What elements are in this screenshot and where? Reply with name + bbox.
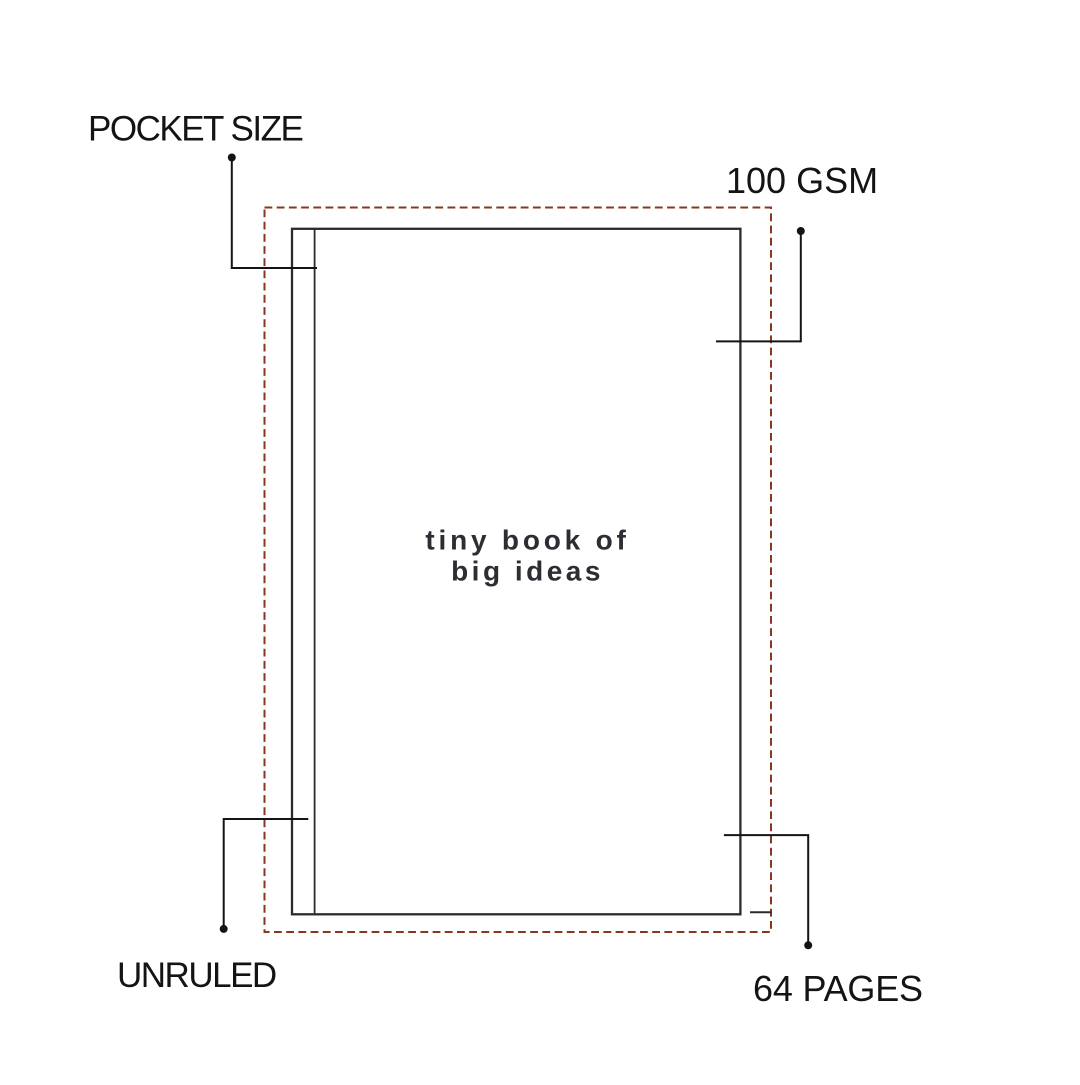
svg-text:POCKET SIZE: POCKET SIZE xyxy=(88,109,302,148)
svg-text:big ideas: big ideas xyxy=(451,555,604,586)
svg-text:UNRULED: UNRULED xyxy=(117,956,276,995)
svg-text:64 PAGES: 64 PAGES xyxy=(753,968,923,1009)
svg-text:100 GSM: 100 GSM xyxy=(726,160,878,201)
svg-text:tiny book of: tiny book of xyxy=(425,525,629,556)
